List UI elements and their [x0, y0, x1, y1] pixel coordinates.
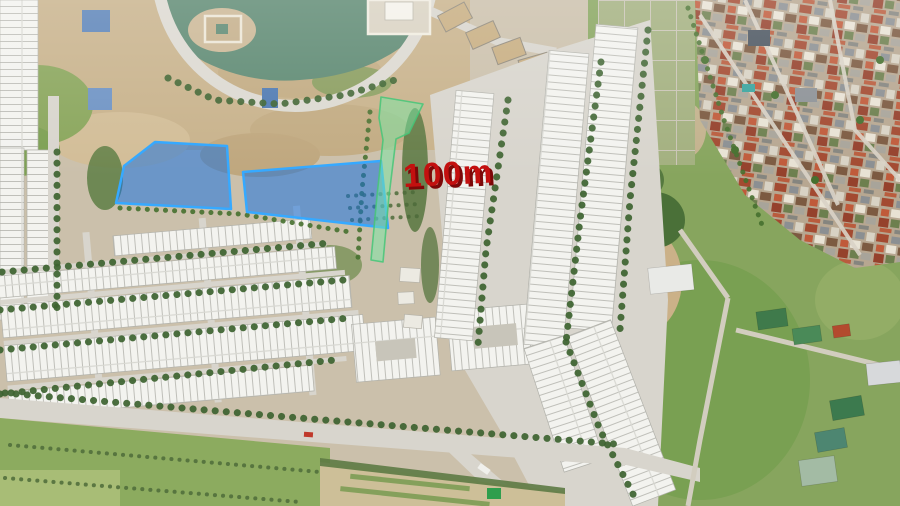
distance-label-text: 100m: [402, 152, 494, 194]
photo-haze: [0, 0, 900, 506]
distance-label: 100m 100m: [402, 152, 497, 197]
aerial-photo-svg: 100m 100m: [0, 0, 900, 506]
aerial-screenshot: 100m 100m: [0, 0, 900, 506]
